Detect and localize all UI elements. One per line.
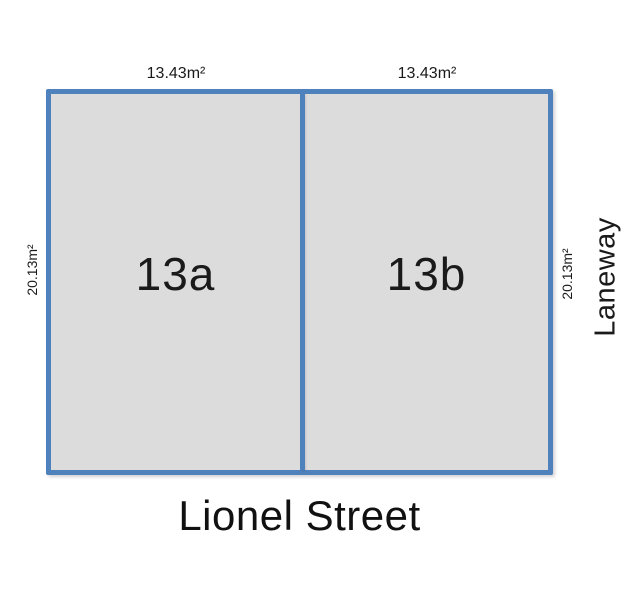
lot-13b-frontage-dimension: 13.43m² xyxy=(398,65,457,83)
subdivision-plan: 13a 13b 13.43m² 13.43m² 20.13m² 20.13m² … xyxy=(0,0,637,600)
lionel-street-label: Lionel Street xyxy=(46,492,553,540)
lot-13b-label: 13b xyxy=(387,247,467,301)
laneway-street-label: Laneway xyxy=(590,217,623,337)
lot-boundary-rectangle: 13a 13b xyxy=(46,89,553,475)
lot-13a-frontage-dimension: 13.43m² xyxy=(147,65,206,83)
lot-13b: 13b xyxy=(305,94,548,470)
lot-13a-label: 13a xyxy=(136,247,216,301)
lot-13a: 13a xyxy=(51,94,300,470)
lot-13a-depth-dimension: 20.13m² xyxy=(24,244,40,295)
lot-13b-depth-dimension: 20.13m² xyxy=(559,248,575,299)
